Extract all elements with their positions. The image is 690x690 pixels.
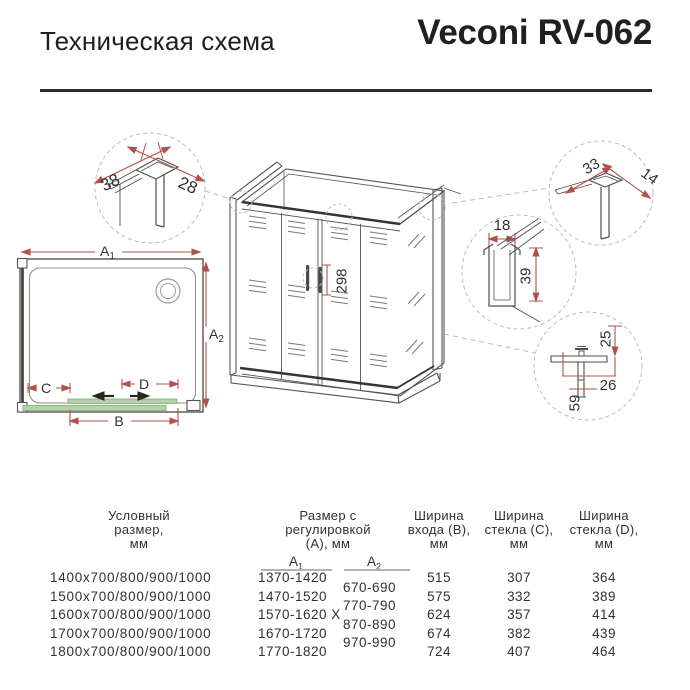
corner-profile-detail: 38 28 bbox=[94, 142, 205, 227]
door-handle bbox=[306, 265, 309, 291]
top-profile-detail: 33 14 bbox=[555, 155, 661, 239]
table-row-d: 414 bbox=[592, 607, 616, 622]
technical-drawing: 38 28 bbox=[0, 0, 690, 500]
top-rail bbox=[242, 202, 400, 224]
table-row-c: 307 bbox=[507, 570, 531, 585]
table-row-b: 724 bbox=[427, 644, 451, 659]
isometric-view: 298 bbox=[230, 162, 461, 403]
table-row-b: 575 bbox=[427, 589, 451, 604]
table-row-c: 332 bbox=[507, 589, 531, 604]
sliding-door-glass bbox=[68, 399, 177, 404]
bracket-detail: 25 26 59 bbox=[551, 326, 622, 411]
table-row-b: 674 bbox=[427, 626, 451, 641]
table-row-size: 1600x700/800/900/1000 bbox=[50, 607, 211, 622]
dim-39-label: 39 bbox=[517, 268, 534, 285]
plan-view: A1 A2 C D B bbox=[18, 243, 225, 429]
table-row-d: 464 bbox=[592, 644, 616, 659]
dim-25-label: 25 bbox=[597, 331, 614, 348]
sliding-door-glass bbox=[23, 406, 166, 411]
table-a2-value: 770-790 bbox=[343, 598, 396, 613]
subcol-a2-underline bbox=[344, 569, 410, 571]
table-row-size: 1500x700/800/900/1000 bbox=[50, 589, 211, 604]
plan-d-label: D bbox=[139, 376, 149, 392]
table-row-a1: 1570-1620 X bbox=[258, 607, 341, 622]
rail-profile-detail: 18 39 bbox=[484, 217, 544, 322]
plan-b-label: B bbox=[114, 413, 123, 429]
table-row-b: 515 bbox=[427, 570, 451, 585]
dim-38-label: 38 bbox=[98, 170, 123, 195]
table-row-d: 364 bbox=[592, 570, 616, 585]
col-header-adjustable: Размер с регулировкой (А), мм bbox=[285, 509, 371, 551]
table-row-b: 624 bbox=[427, 607, 451, 622]
handle-height-dim bbox=[322, 265, 331, 295]
table-row-c: 407 bbox=[507, 644, 531, 659]
table-row-a1: 1770-1820 bbox=[258, 644, 327, 659]
table-row-size: 1800x700/800/900/1000 bbox=[50, 644, 211, 659]
plan-a2-label: A2 bbox=[209, 326, 224, 345]
dim-298-label: 298 bbox=[333, 268, 350, 293]
table-row-d: 389 bbox=[592, 589, 616, 604]
table-row-size: 1700x700/800/900/1000 bbox=[50, 626, 211, 641]
table-a2-value: 870-890 bbox=[343, 617, 396, 632]
dim-28-label: 28 bbox=[175, 173, 200, 198]
col-header-entry-width: Ширина входа (B), мм bbox=[408, 509, 471, 551]
col-header-size: Условный размер, мм bbox=[108, 509, 170, 551]
dim-59-label: 59 bbox=[566, 395, 583, 412]
bracket-detail-circle bbox=[534, 312, 642, 420]
dim-14-label: 14 bbox=[638, 165, 661, 189]
door-handle bbox=[319, 267, 322, 293]
side-glass-hatch bbox=[406, 234, 425, 354]
table-row-d: 439 bbox=[592, 626, 616, 641]
dim-33-label: 33 bbox=[580, 155, 603, 178]
col-header-glass-d: Ширина стекла (D), мм bbox=[570, 509, 639, 551]
dim-18-label: 18 bbox=[494, 217, 511, 234]
leader-lines bbox=[205, 188, 549, 353]
table-row-size: 1400x700/800/900/1000 bbox=[50, 570, 211, 585]
dim-26-label: 26 bbox=[600, 377, 617, 394]
table-row-a1: 1470-1520 bbox=[258, 589, 327, 604]
table-row-c: 357 bbox=[507, 607, 531, 622]
table-row-a1: 1370-1420 bbox=[258, 570, 327, 585]
table-row-a1: 1670-1720 bbox=[258, 626, 327, 641]
plan-c-label: C bbox=[41, 380, 51, 396]
table-a2-value: 970-990 bbox=[343, 635, 396, 650]
table-row-c: 382 bbox=[507, 626, 531, 641]
table-a2-value: 670-690 bbox=[343, 580, 396, 595]
col-header-glass-c: Ширина стекла (C), мм bbox=[485, 509, 554, 551]
